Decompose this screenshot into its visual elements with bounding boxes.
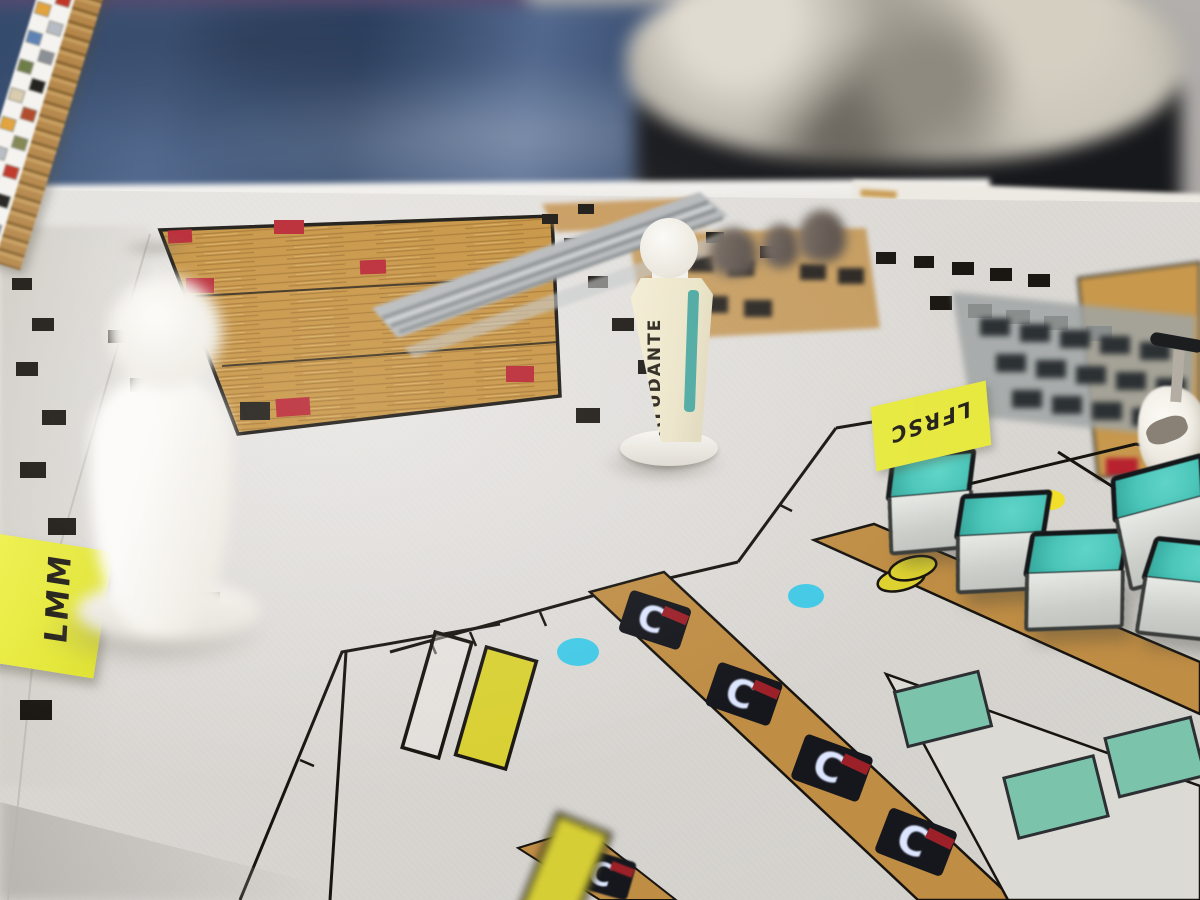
- legend-chip: [0, 116, 17, 133]
- legend-chip: [16, 58, 34, 75]
- legend-chip: [2, 164, 20, 181]
- teal-stripe: [684, 290, 699, 412]
- legend-chip: [0, 192, 11, 209]
- highlight-bar: [456, 647, 537, 769]
- board-tan-mark: [860, 189, 896, 198]
- cyan-dot-sticker: [557, 638, 599, 666]
- figurine-body: AYUDANTE: [629, 278, 713, 442]
- legend-chip: [55, 0, 73, 8]
- figurine-label: AYUDANTE: [645, 284, 665, 436]
- figurine-body: [90, 374, 232, 636]
- highlight-bars: [402, 632, 536, 769]
- legend-chip: [37, 49, 55, 66]
- photo-tabletop-workshop: C C C C C: [0, 0, 1200, 900]
- sticky-note-lfrsc-text: LFRSC: [887, 397, 973, 448]
- clay-cylinder: [762, 224, 799, 268]
- legend-chip: [11, 135, 29, 152]
- clay-cylinder: [798, 210, 846, 262]
- legend-chip: [0, 144, 8, 161]
- machine-icon: C: [704, 661, 783, 727]
- figurine-ayudante: AYUDANTE: [612, 218, 732, 490]
- legend-chip: [46, 20, 64, 37]
- legend-chip: [19, 106, 37, 123]
- figurine-head: [108, 276, 222, 388]
- cyan-dot-sticker: [788, 584, 824, 608]
- legend-chip: [8, 87, 26, 104]
- figurine-head: [640, 218, 698, 278]
- figurine-foreground: [38, 268, 268, 668]
- legend-chip: [34, 1, 52, 18]
- legend-shadow: [118, 238, 194, 258]
- legend-chip: [25, 29, 43, 46]
- legend-chip: [28, 77, 46, 94]
- tiedye-shirt: [626, 0, 1181, 163]
